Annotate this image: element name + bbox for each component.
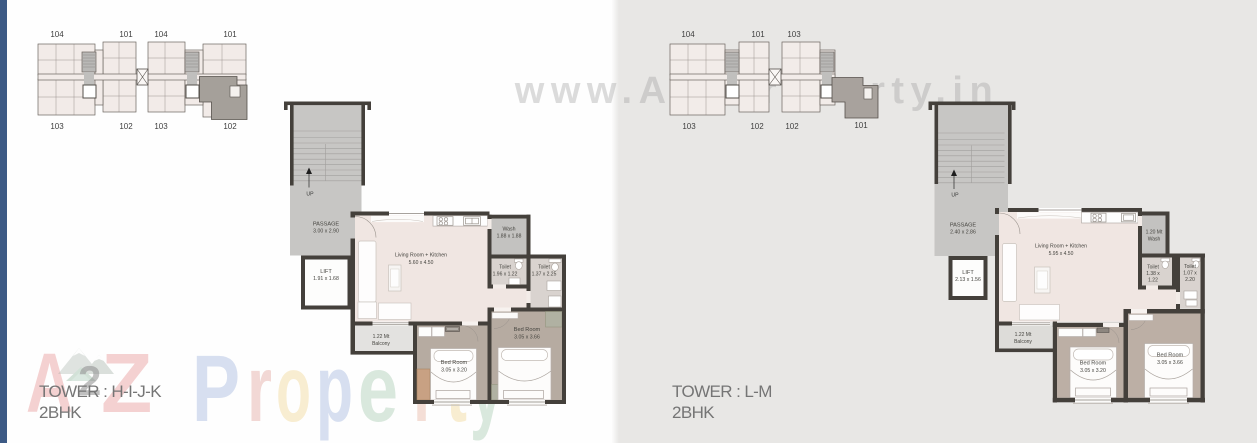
svg-text:5.60 x 4.50: 5.60 x 4.50: [409, 260, 434, 266]
svg-text:1.07 x: 1.07 x: [1183, 271, 1197, 277]
svg-text:2.40 x 2.86: 2.40 x 2.86: [950, 230, 976, 236]
svg-text:Bed Room: Bed Room: [514, 327, 541, 333]
svg-text:2.20: 2.20: [1185, 277, 1195, 283]
svg-text:2BHK: 2BHK: [39, 403, 82, 422]
svg-text:1.38 x: 1.38 x: [1146, 271, 1160, 277]
svg-text:1.96 x 1.22: 1.96 x 1.22: [493, 272, 518, 278]
svg-text:1.37 x 2.25: 1.37 x 2.25: [532, 272, 557, 278]
svg-text:102: 102: [785, 122, 799, 131]
svg-text:1.91 x 1.68: 1.91 x 1.68: [313, 276, 339, 282]
svg-text:101: 101: [223, 30, 237, 39]
svg-text:103: 103: [154, 122, 168, 131]
svg-text:PASSAGE: PASSAGE: [950, 223, 977, 229]
svg-text:PASSAGE: PASSAGE: [313, 222, 340, 228]
svg-text:103: 103: [787, 30, 801, 39]
svg-text:Bed Room: Bed Room: [1157, 353, 1184, 359]
svg-text:LIFT: LIFT: [320, 269, 332, 275]
svg-text:LIFT: LIFT: [962, 270, 974, 276]
svg-text:Living Room + Kitchen: Living Room + Kitchen: [395, 253, 447, 259]
svg-text:102: 102: [750, 122, 764, 131]
svg-text:3.05 x 3.66: 3.05 x 3.66: [514, 335, 540, 341]
svg-text:Balcony: Balcony: [1014, 339, 1032, 345]
svg-text:2.13 x 1.56: 2.13 x 1.56: [955, 277, 981, 283]
svg-text:104: 104: [154, 30, 168, 39]
svg-text:Toilet: Toilet: [1147, 265, 1159, 271]
svg-text:TOWER : L-M: TOWER : L-M: [672, 382, 772, 401]
svg-text:3.05 x 3.20: 3.05 x 3.20: [441, 368, 467, 374]
svg-text:Toilet: Toilet: [1184, 264, 1196, 270]
svg-text:101: 101: [854, 121, 868, 130]
svg-text:Bed Room: Bed Room: [441, 360, 468, 366]
svg-text:Toilet: Toilet: [499, 265, 511, 271]
svg-text:Bed Room: Bed Room: [1080, 361, 1107, 367]
svg-text:UP: UP: [306, 192, 314, 198]
svg-text:104: 104: [50, 30, 64, 39]
svg-text:1.22 Mt: 1.22 Mt: [373, 334, 390, 340]
svg-text:101: 101: [751, 30, 765, 39]
svg-text:102: 102: [119, 122, 133, 131]
svg-text:Wash: Wash: [1148, 237, 1161, 243]
svg-text:3.00 x 2.90: 3.00 x 2.90: [313, 229, 339, 235]
svg-text:1.22 Mt: 1.22 Mt: [1015, 332, 1032, 338]
svg-text:103: 103: [50, 122, 64, 131]
svg-text:2BHK: 2BHK: [672, 403, 715, 422]
svg-text:Toilet: Toilet: [538, 265, 550, 271]
svg-text:1.22: 1.22: [1148, 278, 1158, 284]
svg-text:103: 103: [682, 122, 696, 131]
svg-text:1.20 Mt: 1.20 Mt: [1146, 230, 1163, 236]
svg-text:Living Room + Kitchen: Living Room + Kitchen: [1035, 244, 1087, 250]
svg-text:101: 101: [119, 30, 133, 39]
svg-text:Wash: Wash: [502, 227, 515, 233]
svg-text:TOWER : H-I-J-K: TOWER : H-I-J-K: [39, 382, 162, 401]
svg-text:5.95 x 4.50: 5.95 x 4.50: [1049, 251, 1074, 257]
svg-text:104: 104: [681, 30, 695, 39]
svg-text:3.05 x 3.66: 3.05 x 3.66: [1157, 360, 1183, 366]
svg-text:Balcony: Balcony: [372, 341, 390, 347]
svg-text:3.05 x 3.20: 3.05 x 3.20: [1080, 368, 1106, 374]
svg-text:1.88 x 1.88: 1.88 x 1.88: [497, 234, 522, 240]
svg-text:102: 102: [223, 122, 237, 131]
svg-text:UP: UP: [951, 193, 959, 199]
